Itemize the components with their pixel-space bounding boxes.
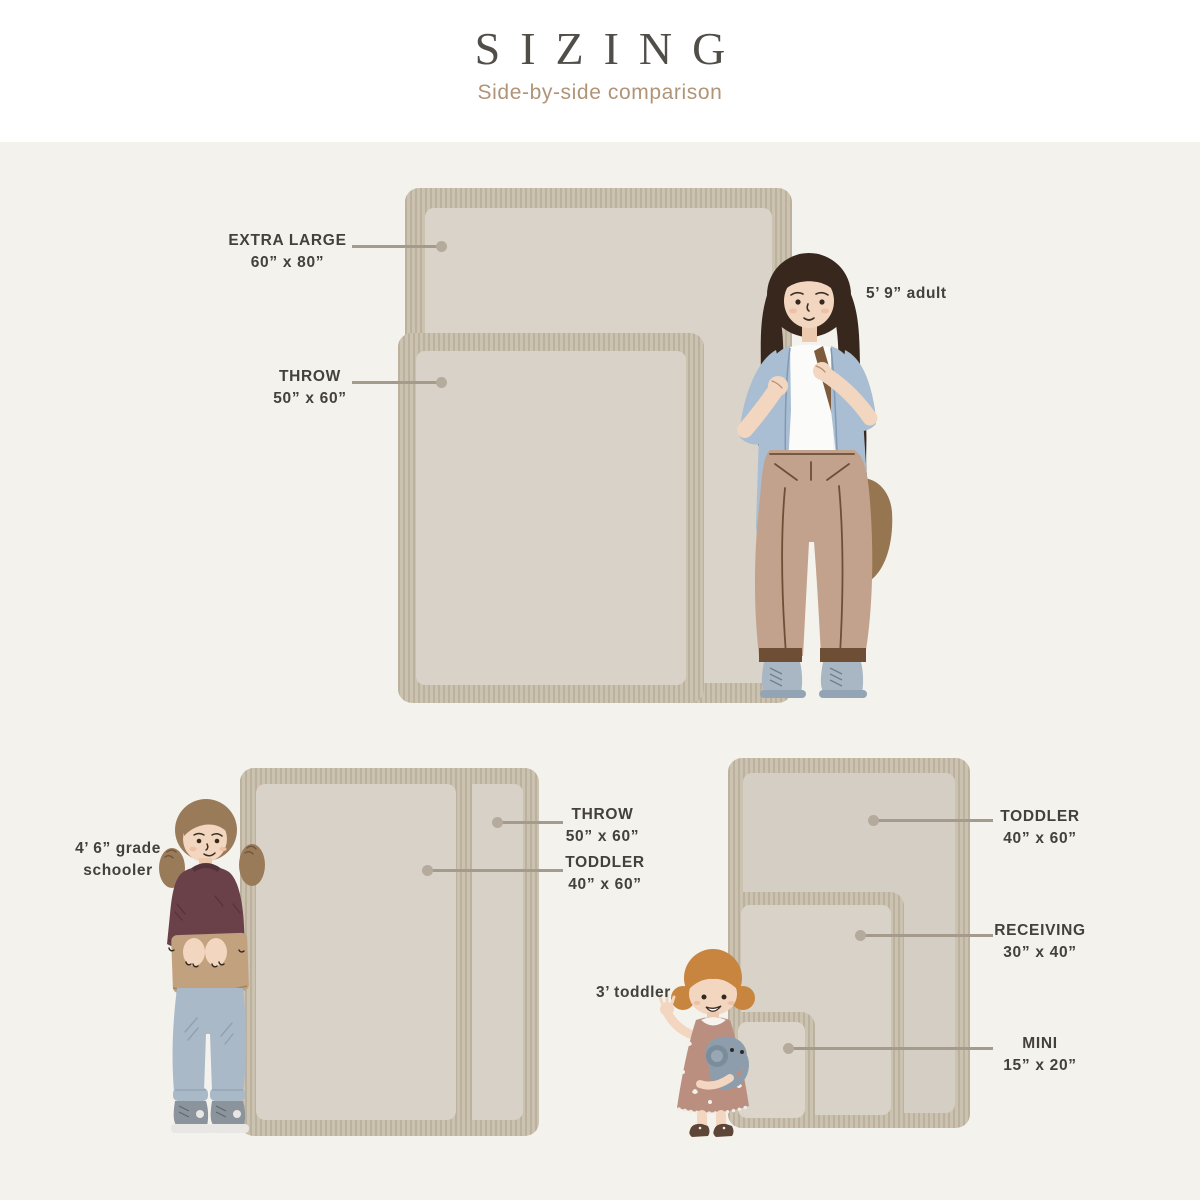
page-title: SIZING [0,24,1200,75]
callout-size: 30” x 40” [955,942,1125,964]
leader-dot [855,930,866,941]
callout-toddler-grade: TODDLER 40” x 60” [525,852,685,897]
blanket-toddler-grade [240,768,472,1136]
callout-throw-adult: THROW 50” x 60” [220,366,400,411]
callout-mini: MINI 15” x 20” [965,1033,1115,1078]
leader-dot [436,377,447,388]
leader-dot [868,815,879,826]
header: SIZING Side-by-side comparison [0,0,1200,142]
toddler-illustration [650,946,765,1141]
callout-size: 50” x 60” [220,388,400,410]
callout-size: 15” x 20” [965,1055,1115,1077]
blanket-throw-adult [398,333,704,703]
callout-size: 40” x 60” [525,874,685,896]
sizing-infographic: SIZING Side-by-side comparison [0,0,1200,1200]
grade-schooler-height-label: 4’ 6” grade schooler [48,838,188,883]
leader-mini [788,1047,993,1050]
callout-name: TODDLER [965,806,1115,828]
callout-receiving: RECEIVING 30” x 40” [955,920,1125,965]
adult-height-label: 5’ 9” adult [866,283,986,305]
toddler-drawing [650,946,765,1141]
callout-name: MINI [965,1033,1115,1055]
leader-dot [783,1043,794,1054]
adult-woman-illustration [712,250,907,710]
toddler-height-label: 3’ toddler [596,982,696,1004]
callout-extra-large: EXTRA LARGE 60” x 80” [195,230,380,275]
callout-name: TODDLER [525,852,685,874]
callout-name: EXTRA LARGE [195,230,380,252]
callout-size: 50” x 60” [525,826,680,848]
callout-toddler: TODDLER 40” x 60” [965,806,1115,851]
adult-woman-drawing [712,250,907,710]
leader-dot [492,817,503,828]
leader-dot [422,865,433,876]
callout-throw-grade: THROW 50” x 60” [525,804,680,849]
callout-name: THROW [525,804,680,826]
callout-name: THROW [220,366,400,388]
callout-size: 40” x 60” [965,828,1115,850]
callout-name: RECEIVING [955,920,1125,942]
page-subtitle: Side-by-side comparison [0,81,1200,105]
leader-dot [436,241,447,252]
callout-size: 60” x 80” [195,252,380,274]
